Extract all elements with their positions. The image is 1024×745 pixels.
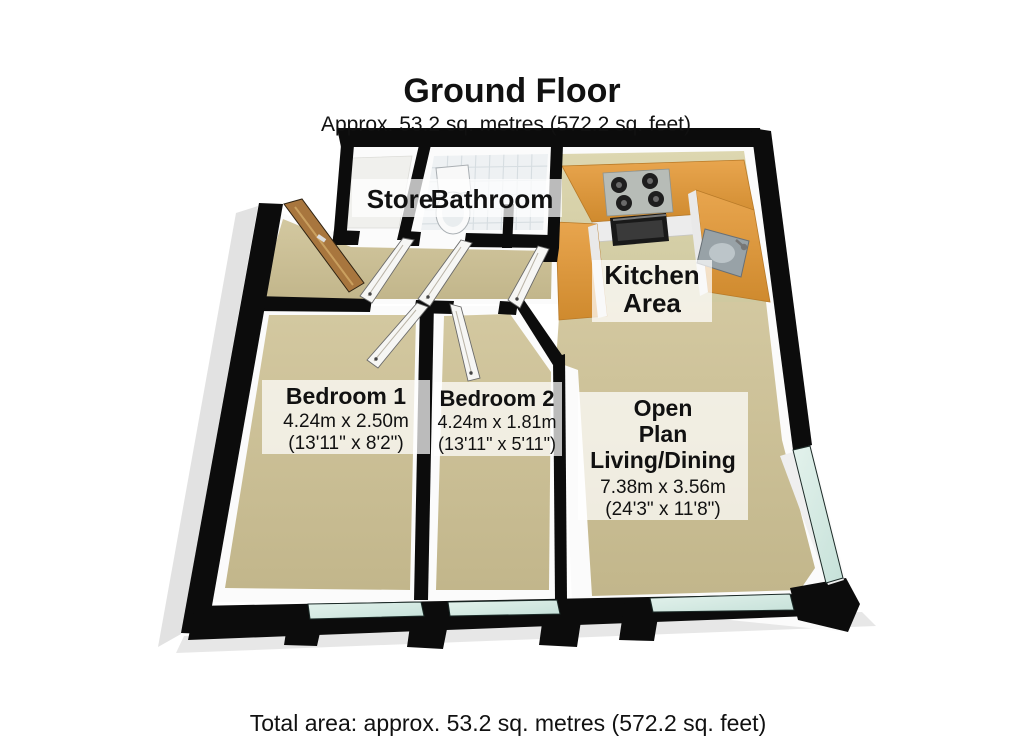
- kitchen-label: Kitchen Area: [592, 260, 712, 322]
- svg-text:7.38m x 3.56m: 7.38m x 3.56m: [600, 477, 726, 498]
- bedroom1-label: Bedroom 1 4.24m x 2.50m (13'11" x 8'2"): [262, 380, 430, 454]
- svg-text:4.24m x 1.81m: 4.24m x 1.81m: [437, 412, 556, 432]
- svg-text:4.24m x 2.50m: 4.24m x 2.50m: [283, 411, 409, 432]
- svg-text:Area: Area: [623, 288, 681, 318]
- svg-text:Kitchen: Kitchen: [604, 260, 699, 290]
- bedroom2-window: [448, 600, 560, 616]
- svg-text:(24'3" x 11'8"): (24'3" x 11'8"): [605, 499, 720, 520]
- svg-text:Bedroom 2: Bedroom 2: [440, 386, 555, 411]
- store-label: Store: [367, 184, 433, 214]
- floor-plan-page: Store Bathroom Kitchen Area Bedroom 1 4.…: [0, 0, 1024, 745]
- svg-text:(13'11" x 8'2"): (13'11" x 8'2"): [288, 433, 403, 454]
- hob-icon: [603, 169, 673, 216]
- store-bathroom-label: Store Bathroom: [352, 179, 562, 217]
- bedroom2-label: Bedroom 2 4.24m x 1.81m (13'11" x 5'11"): [434, 382, 562, 456]
- svg-text:Living/Dining: Living/Dining: [590, 447, 736, 473]
- oven-icon: [610, 213, 669, 246]
- page-subtitle: Approx. 53.2 sq. metres (572.2 sq. feet): [321, 113, 691, 136]
- living-dining-label: Open Plan Living/Dining 7.38m x 3.56m (2…: [578, 392, 748, 520]
- bedroom1-window: [308, 602, 424, 619]
- svg-text:Plan: Plan: [639, 421, 688, 447]
- bathroom-label: Bathroom: [431, 184, 554, 214]
- svg-text:(13'11" x 5'11"): (13'11" x 5'11"): [438, 434, 556, 454]
- page-title: Ground Floor: [403, 72, 620, 110]
- svg-text:Bedroom 1: Bedroom 1: [286, 383, 406, 409]
- total-area-text: Total area: approx. 53.2 sq. metres (572…: [250, 710, 767, 736]
- svg-text:Open: Open: [634, 395, 693, 421]
- floor-plan-image: Store Bathroom Kitchen Area Bedroom 1 4.…: [0, 0, 1024, 745]
